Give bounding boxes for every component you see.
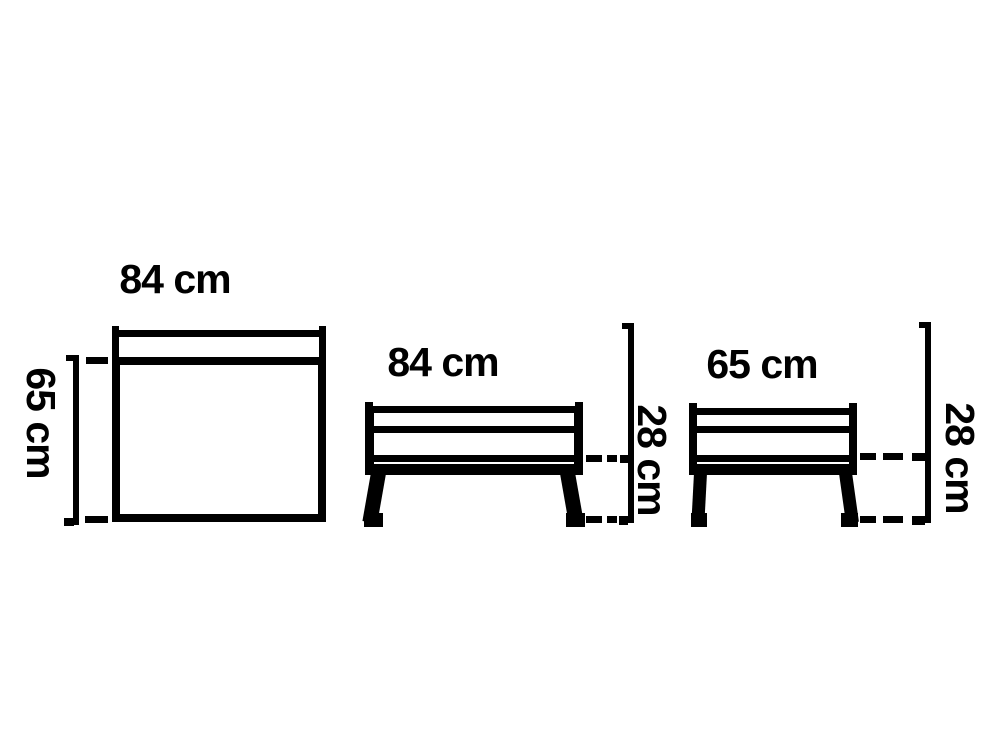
top-view-outline: [112, 357, 326, 522]
top-view-width-dimension-tick-right: [319, 326, 326, 357]
side-height-dash-top-2: [883, 453, 903, 460]
front-height-dash-top-1: [586, 455, 602, 462]
front-height-dash-bottom-2: [607, 516, 617, 523]
top-view-depth-dimension-line: [73, 355, 79, 525]
top-view-depth-dimension-serif-bottom: [64, 518, 74, 526]
side-bench-frame-line: [689, 455, 857, 462]
side-height-dash-bottom-3: [912, 516, 925, 525]
front-bench-seat-rail: [365, 464, 583, 475]
top-view-width-label: 84 cm: [95, 256, 255, 302]
front-height-dash-top-3: [620, 455, 628, 463]
side-height-extension-serif: [919, 322, 925, 328]
side-bench-seat-rail: [689, 464, 857, 475]
side-bench-cushion-seam: [695, 426, 851, 433]
front-height-dash-top-2: [607, 455, 617, 462]
top-view-depth-label: 65 cm: [18, 343, 64, 503]
front-bench-foot-left: [364, 513, 383, 527]
front-bench-foot-right: [566, 513, 585, 527]
front-view-width-label: 84 cm: [363, 339, 523, 385]
side-bench-foot-right: [841, 513, 858, 527]
side-height-dash-top-1: [860, 453, 876, 460]
top-view-width-dimension-tick-left: [112, 326, 119, 357]
front-height-dash-bottom-1: [586, 516, 602, 523]
side-height-dash-bottom-1: [860, 516, 876, 523]
side-view-height-label: 28 cm: [937, 378, 983, 538]
front-height-dash-bottom-3: [619, 516, 628, 525]
front-view-height-label: 28 cm: [629, 380, 675, 540]
front-bench-top-edge: [365, 406, 583, 413]
top-view-depth-dimension-serif-top: [66, 355, 74, 361]
front-bench-frame-line: [365, 455, 583, 462]
side-bench-foot-left: [691, 513, 707, 527]
front-height-extension-serif: [622, 323, 628, 329]
side-height-extension-line: [925, 322, 931, 523]
top-view-width-dimension-line: [112, 330, 326, 337]
side-view-width-label: 65 cm: [682, 341, 842, 387]
front-bench-cushion-seam: [372, 426, 576, 433]
top-view-depth-dash-top: [86, 357, 108, 364]
side-height-dash-bottom-2: [883, 516, 903, 523]
top-view-depth-dash-bottom: [85, 516, 108, 523]
dimension-diagram: 84 cm 65 cm 84 cm: [0, 0, 1000, 750]
side-height-dash-top-3: [912, 453, 925, 461]
side-bench-top-edge: [689, 408, 857, 415]
